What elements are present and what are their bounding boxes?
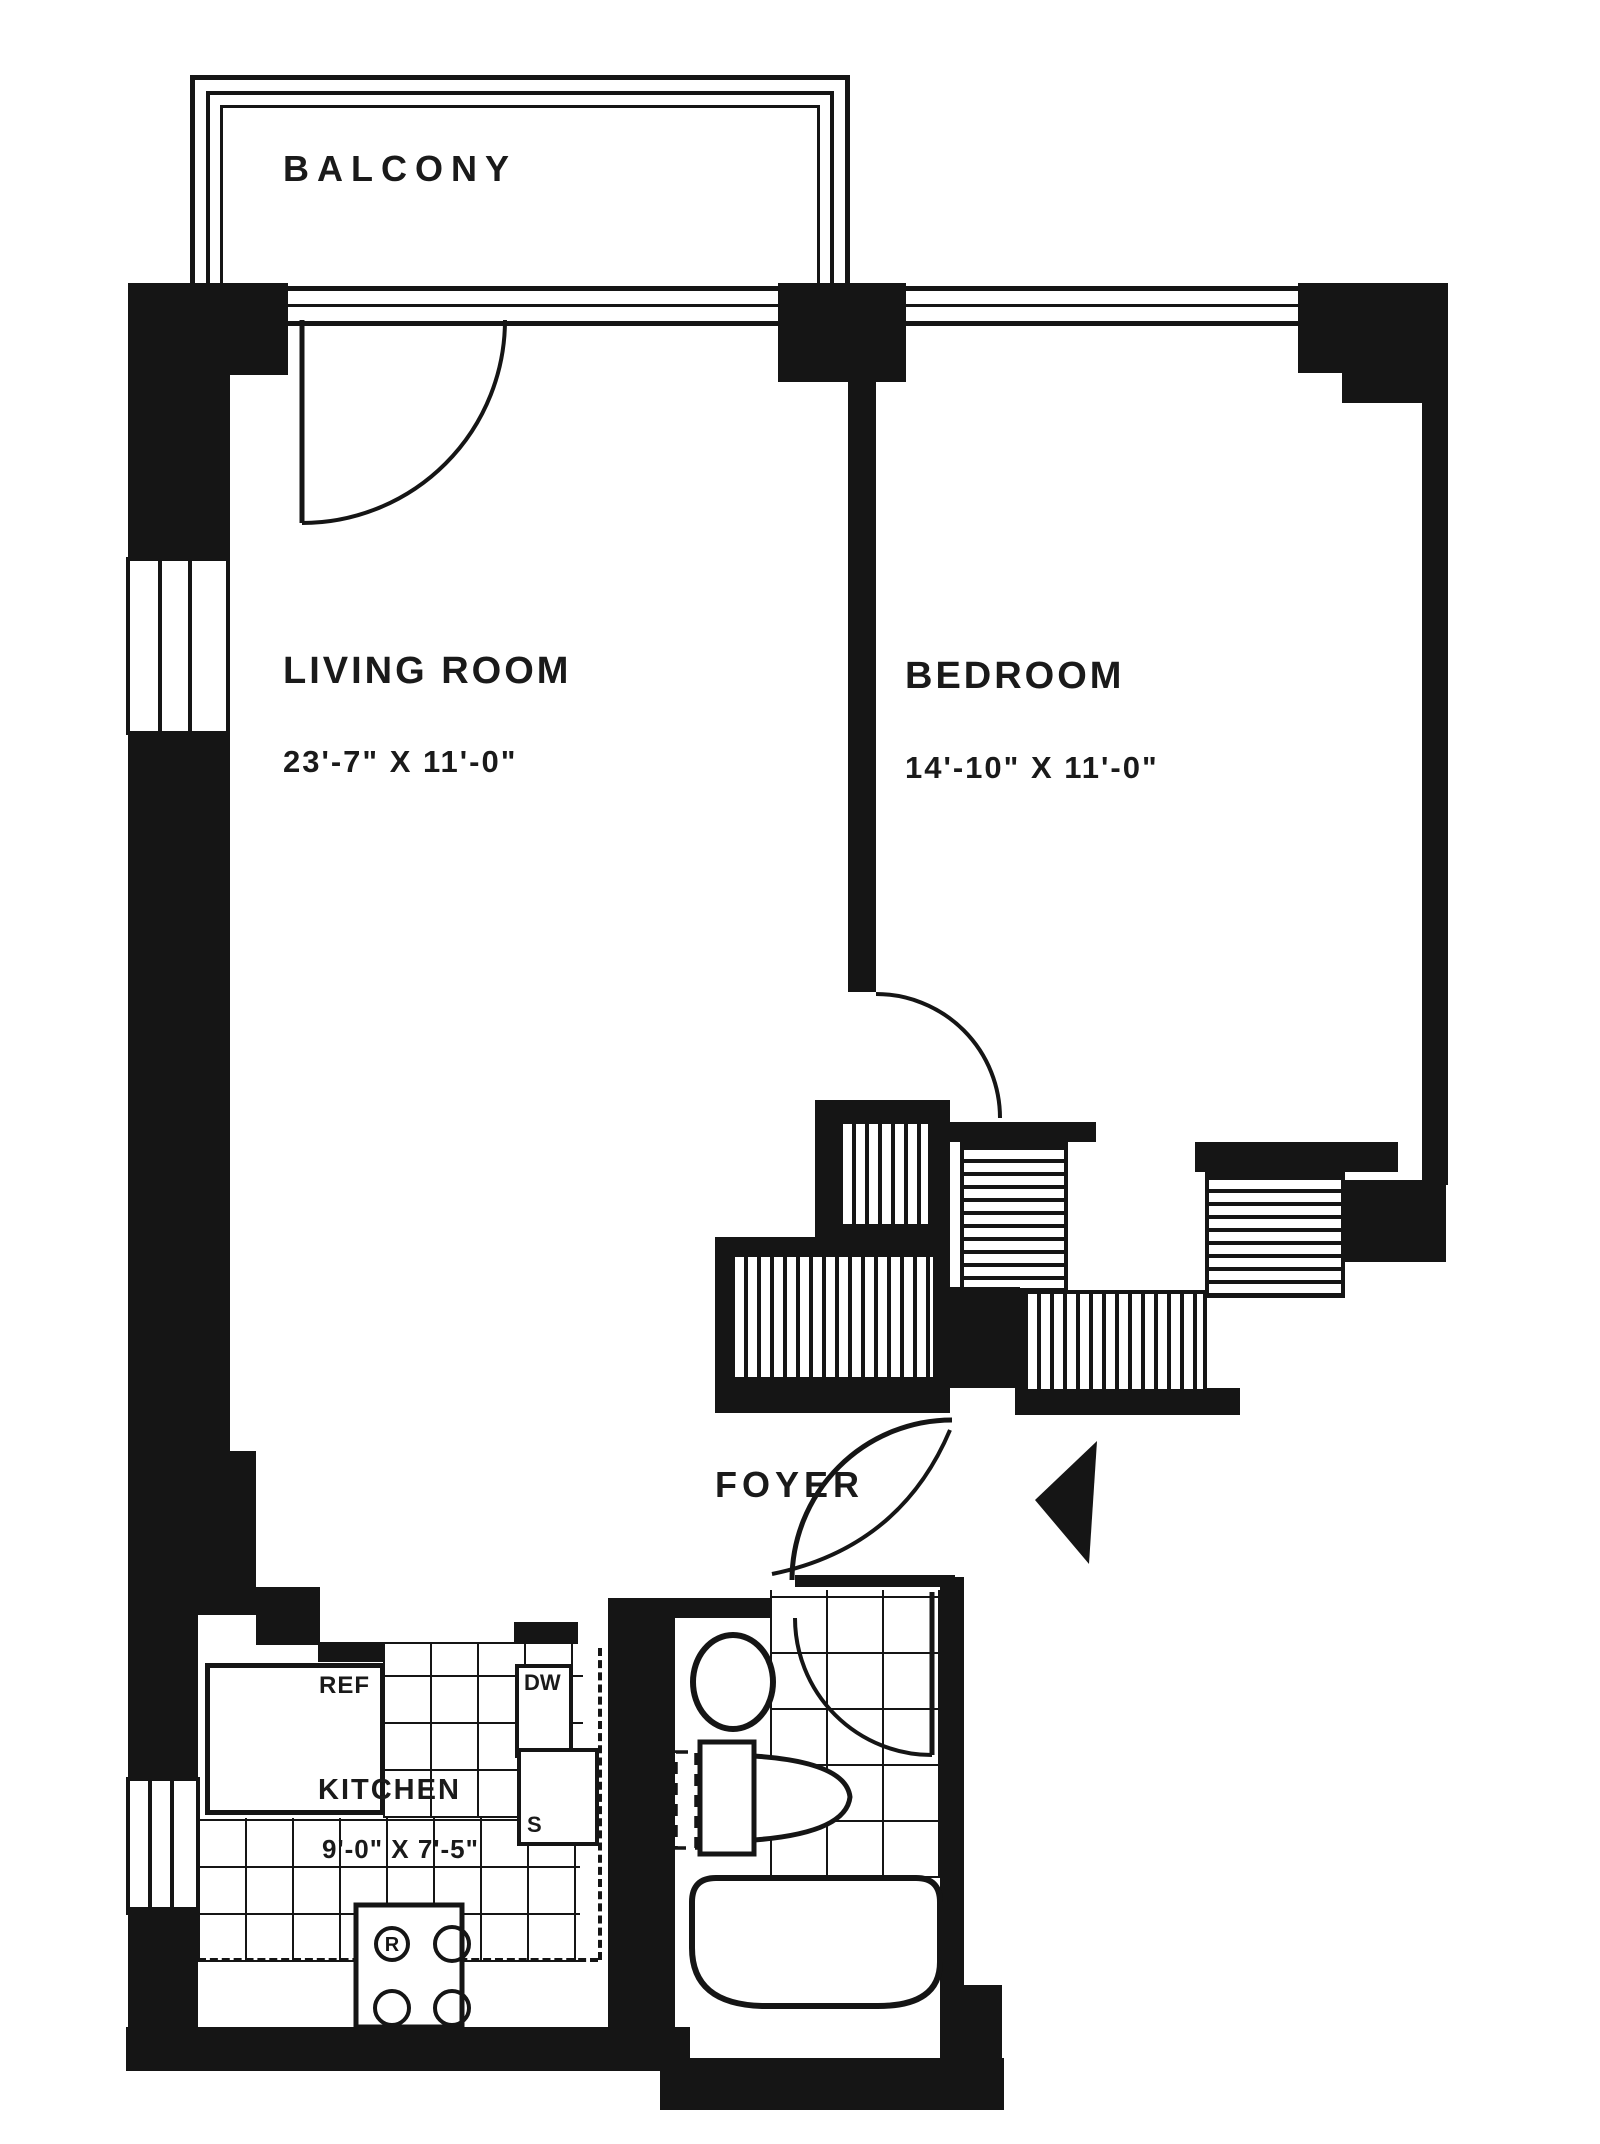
wall-left-step [128,1451,256,1615]
living-room-label: LIVING ROOM [283,650,571,693]
refrigerator-label: REF [319,1672,370,1700]
wall-kitchen-bottom [126,2027,690,2071]
window-mullion [158,561,162,731]
window-left-upper [126,557,230,735]
bedroom-label: BEDROOM [905,655,1124,698]
kitchen-sink: S [517,1748,599,1846]
wall-left-lower [128,1615,198,1777]
closet-hatch [839,1124,928,1224]
balcony-door-swing-arc [302,320,505,523]
wall-right [1422,283,1448,1185]
wall-top-left-corner [128,283,288,375]
kitchen-dimensions: 9'-0" X 7'-5" [322,1834,479,1865]
wall-partition-living-bedroom [848,382,876,992]
wall-entry-header [795,1575,955,1587]
closet-hatch [1205,1172,1345,1298]
closet-wall [948,1122,1096,1142]
closet-frame [815,1100,950,1248]
window-mullion [188,561,192,731]
wall-left-long [128,735,230,1451]
kitchen-sink-label: S [527,1812,542,1838]
toilet-tank [700,1742,754,1854]
bathtub [692,1878,940,2006]
wall-top-middle [778,283,906,382]
foyer-label: FOYER [715,1464,864,1506]
bathroom-sink [693,1635,773,1729]
balcony-railing-line-3 [220,105,820,293]
bedroom-dimensions: 14'-10" X 11'-0" [905,750,1159,786]
range-burner [435,1991,469,2025]
closet-hatch [731,1257,933,1377]
window-band-living-room [288,286,778,326]
range-burner [375,1991,409,2025]
wall-left-upper [128,375,230,557]
window-band-line [906,304,1298,307]
closet-frame [715,1237,950,1413]
toilet-dashed-outline [676,1752,696,1848]
window-band-line [288,304,778,307]
window-kitchen [126,1777,200,1915]
wall-bathroom-bottom [660,2058,1004,2110]
kitchen-label: KITCHEN [318,1774,461,1807]
wall-bathroom-left [608,1598,675,2027]
window-band-bedroom [906,286,1298,326]
window-mullion [148,1781,152,1911]
balcony-label: BALCONY [283,148,517,190]
wall-right-jut [1343,1180,1446,1262]
closet-hatch [1020,1290,1207,1393]
wall-step-kitchen [256,1587,320,1645]
counter-dashed-line [598,1648,602,1960]
bathroom-floor-tiles [770,1590,940,1878]
balcony-railing-line-2 [206,91,834,293]
dishwasher: DW [515,1664,573,1758]
closet-wall [1195,1142,1398,1172]
floor-plan: BALCONY [0,0,1600,2144]
entry-arrow-icon [1035,1441,1097,1564]
dishwasher-label: DW [524,1670,561,1696]
counter-dashed-line [198,1958,598,1962]
wall-left-bottom [128,1907,198,2027]
closet-hatch [960,1142,1068,1292]
closet-pillar [943,1287,1020,1388]
living-room-dimensions: 23'-7" X 11'-0" [283,744,517,780]
window-mullion [170,1781,174,1911]
